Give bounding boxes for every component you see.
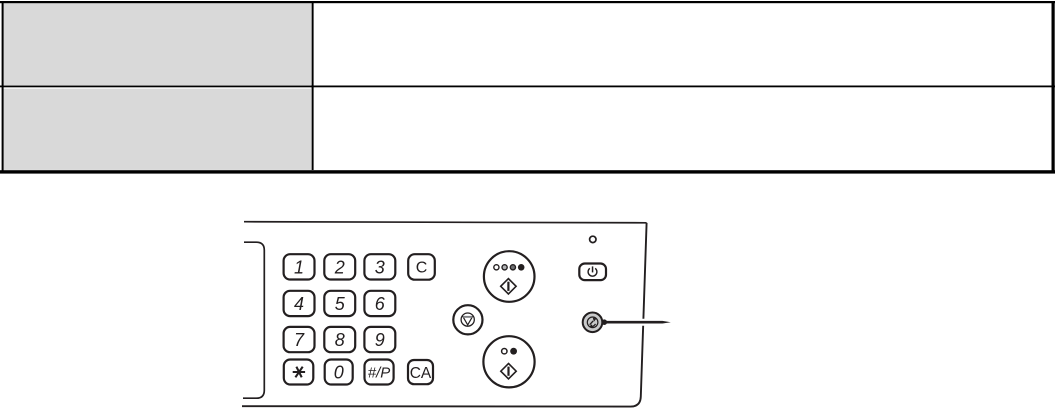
svg-text:C: C [416,260,428,277]
svg-text:1: 1 [294,257,304,277]
svg-text:0: 0 [334,363,344,383]
svg-text:8: 8 [335,330,345,350]
svg-text:2: 2 [334,257,345,277]
svg-text:CA: CA [410,365,432,382]
svg-text:6: 6 [375,294,386,314]
svg-text:9: 9 [375,330,385,350]
svg-text:5: 5 [335,294,346,314]
svg-text:#/P: #/P [368,365,391,382]
svg-text:4: 4 [294,294,304,314]
svg-text:3: 3 [375,257,385,277]
svg-text:7: 7 [294,330,305,350]
